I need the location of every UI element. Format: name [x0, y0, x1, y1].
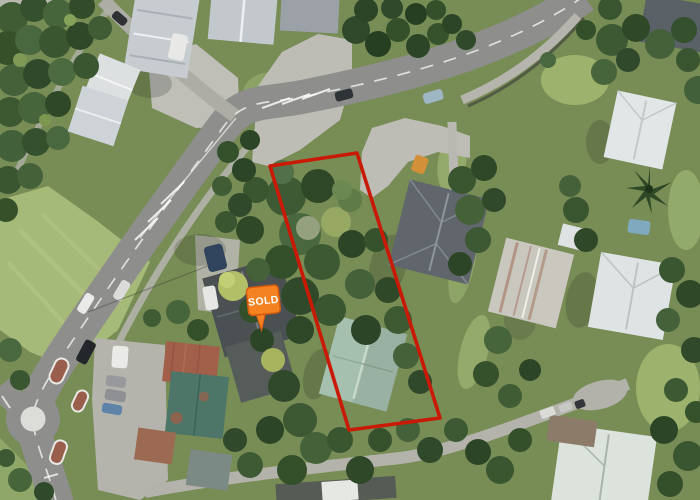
house-roof	[208, 0, 279, 45]
teal-roof-building	[165, 371, 229, 439]
gray-roof-shed	[186, 449, 233, 490]
warehouse-roof	[124, 0, 200, 78]
house-roof	[280, 0, 340, 33]
rust-roof-shed	[134, 428, 176, 465]
aerial-photo: SOLD	[0, 0, 700, 500]
aerial-map[interactable]: SOLD	[0, 0, 700, 500]
roundabout-paint	[21, 407, 46, 432]
truck	[111, 345, 128, 368]
